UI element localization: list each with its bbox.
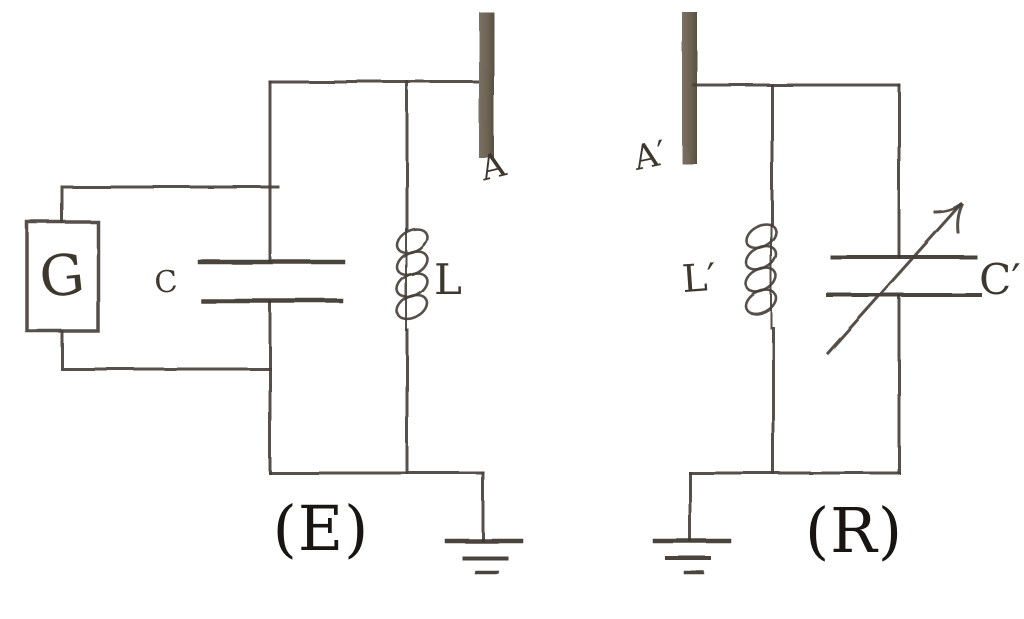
capacitor-prime-label: C′ (979, 259, 1021, 301)
inductor-coil-icon (393, 224, 431, 324)
ground-prime-icon (655, 541, 729, 572)
emitter-generator-top-wire (62, 187, 278, 222)
antenna-prime-icon (682, 12, 697, 164)
inductor-prime-coil-icon (742, 219, 780, 319)
capacitor-label: C (153, 267, 178, 299)
antenna-icon (479, 12, 494, 158)
antenna-prime-label: A′ (631, 136, 670, 176)
inductor-label: L (434, 259, 462, 301)
ground-icon (447, 541, 521, 572)
circuit-diagram: G C L A (E) A′ L′ C′ (R) (0, 0, 1024, 619)
generator-label: G (37, 247, 87, 307)
receiver-caption: (R) (805, 500, 903, 562)
emitter-caption: (E) (273, 498, 370, 560)
variable-arrow-icon (828, 204, 962, 353)
inductor-prime-label: L′ (681, 258, 717, 298)
emitter-generator-bottom-wire (62, 331, 270, 369)
